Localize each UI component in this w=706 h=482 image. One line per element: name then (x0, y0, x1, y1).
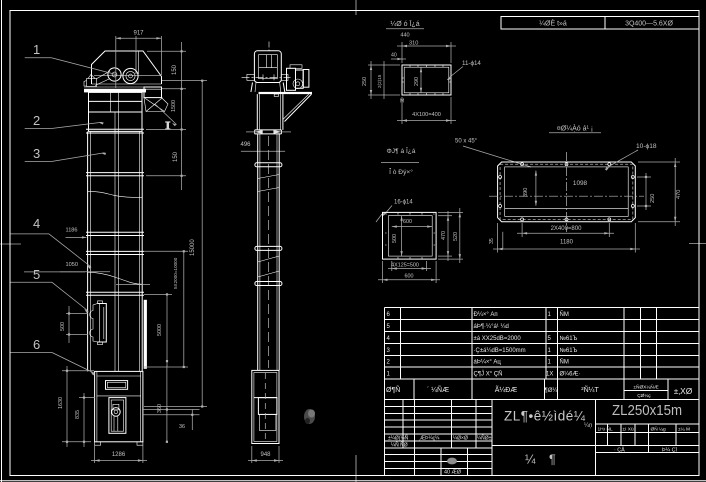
svg-text:·Ç±á¼dB=1500mm: ·Ç±á¼dB=1500mm (474, 348, 526, 354)
svg-text:¶: ¶ (549, 453, 556, 467)
svg-text:1286: 1286 (112, 452, 126, 458)
svg-text:5000: 5000 (157, 324, 163, 336)
svg-text:¼Ñ ÑØ: ¼Ñ ÑØ (391, 442, 408, 449)
svg-text:1630: 1630 (58, 397, 64, 409)
svg-text:2: 2 (33, 113, 40, 128)
svg-text:ØÑ ¼g: ØÑ ¼g (651, 426, 667, 433)
svg-text:2X400=800: 2X400=800 (551, 226, 583, 232)
svg-text:150: 150 (173, 151, 179, 162)
svg-text:948: 948 (260, 452, 271, 458)
svg-text:496: 496 (241, 142, 252, 148)
svg-text:1500: 1500 (171, 100, 177, 112)
svg-text:4: 4 (33, 216, 40, 231)
svg-text:1180: 1180 (560, 240, 574, 246)
svg-text:390: 390 (523, 188, 529, 197)
svg-text:290: 290 (414, 77, 420, 86)
svg-text:50 x 45°: 50 x 45° (455, 139, 478, 145)
svg-text:4X125=500: 4X125=500 (391, 263, 419, 269)
svg-text:áÞ¼×° Ац: áÞ¼×° Ац (474, 360, 502, 366)
svg-text:1186: 1186 (66, 228, 78, 234)
svg-text:835: 835 (75, 410, 81, 419)
svg-text:440: 440 (400, 33, 409, 39)
svg-text:36: 36 (179, 424, 185, 430)
svg-text:500: 500 (60, 322, 66, 331)
svg-text:1050: 1050 (66, 262, 78, 268)
svg-text:ÑΜ: ÑΜ (560, 359, 569, 366)
svg-text:Ø¼6Æ·: Ø¼6Æ· (560, 371, 581, 377)
svg-text:11-ϕ14: 11-ϕ14 (462, 60, 481, 67)
svg-text:1X: 1X (546, 371, 553, 377)
svg-text:Ø¶Ñ: Ø¶Ñ (386, 385, 400, 394)
svg-text:250: 250 (650, 194, 656, 203)
svg-text:3Q400—5.6XØ: 3Q400—5.6XØ (625, 21, 673, 28)
svg-text:Ã¼ÐÆ: Ã¼ÐÆ (495, 385, 518, 394)
svg-text:±‚XØ: ±‚XØ (674, 386, 693, 396)
svg-text:¼Ø×Ø: ¼Ø×Ø (453, 436, 468, 442)
svg-text:±á XX25dB=2000: ±á XX25dB=2000 (474, 336, 522, 342)
svg-text:¶Ø¼: ¶Ø¼ (545, 388, 559, 394)
svg-text:1Ƕ ÑL: 1Ƕ ÑL (598, 426, 613, 433)
svg-text:1098: 1098 (573, 180, 588, 187)
svg-text:Ç¶Ĵ X° ÇÑ: Ç¶Ĵ X° ÇÑ (474, 369, 503, 377)
svg-text:917: 917 (133, 31, 144, 37)
svg-text:Þ¼ ÇÏ: Þ¼ ÇÏ (662, 446, 677, 453)
svg-text:15000: 15000 (190, 239, 196, 256)
svg-text:· ÇÅ: · ÇÅ (614, 446, 625, 453)
svg-text:¼ņ: ¼ņ (584, 423, 592, 429)
svg-text:5: 5 (33, 267, 40, 282)
svg-text:470: 470 (441, 231, 447, 240)
svg-text:5X2000=10000: 5X2000=10000 (173, 257, 178, 289)
svg-text:Ī́ ò Đý×°: Ī́ ò Đý×° (389, 167, 413, 176)
svg-text:№61Ъ: №61Ъ (560, 347, 578, 354)
svg-text:±¼Ø(¼Ñ: ±¼Ø(¼Ñ (388, 435, 409, 442)
svg-text:16-ϕ14: 16-ϕ14 (394, 200, 413, 206)
svg-text:500: 500 (392, 234, 398, 243)
svg-text:ÇØ¼ç: ÇØ¼ç (637, 393, 651, 399)
svg-text:áÞ¶·¼°á¹ ¼d: áÞ¶·¼°á¹ ¼d (474, 324, 509, 330)
svg-text:´ ¼ÑÆ: ´ ¼ÑÆ (427, 385, 449, 394)
svg-text:600: 600 (403, 219, 412, 225)
svg-text:3: 3 (33, 146, 40, 161)
svg-text:10-ϕ18: 10-ϕ18 (636, 143, 657, 150)
svg-text:ΦJ¶ á Ī¿á: ΦJ¶ á Ī¿á (387, 147, 416, 155)
svg-text:150: 150 (172, 64, 178, 75)
svg-text:ZL250x15m: ZL250x15m (612, 402, 682, 419)
svg-text:¸ÆÞ¼ç¼: ¸ÆÞ¼ç¼ (419, 436, 441, 442)
svg-text:±I Xü: ±I Xü (623, 427, 634, 433)
svg-text:35: 35 (489, 238, 495, 244)
svg-text:360: 360 (157, 404, 163, 413)
svg-text:2(2)15: 2(2)15 (377, 74, 382, 88)
svg-text:¼ØÈ t»á: ¼ØÈ t»á (539, 19, 567, 28)
svg-text:6: 6 (33, 337, 40, 352)
svg-text:№61Ъ: №61Ъ (560, 335, 578, 342)
svg-text:±ÑØX¼ÑÆ: ±ÑØX¼ÑÆ (633, 384, 658, 391)
svg-text:250: 250 (362, 77, 368, 86)
svg-text:520: 520 (453, 232, 459, 241)
svg-text:ÑΜ: ÑΜ (560, 311, 569, 318)
svg-text:²Ñ¼T: ²Ñ¼T (581, 385, 599, 394)
svg-text:±¼ Ṁ: ±¼ Ṁ (678, 426, 690, 433)
svg-text:Ð¼×° Ап: Ð¼×° Ап (474, 312, 498, 318)
svg-text:40 ÆØ: 40 ÆØ (444, 470, 462, 476)
svg-text:600: 600 (405, 274, 414, 280)
svg-text:¤Ø¼Ạ̀ó á¹ ¡: ¤Ø¼Ạ̀ó á¹ ¡ (557, 124, 593, 133)
svg-text:470: 470 (676, 190, 682, 199)
svg-text:¼Ø ó Ī¿á: ¼Ø ó Ī¿á (390, 20, 419, 28)
svg-text:40: 40 (391, 53, 397, 59)
svg-text:¼ÑØ±: ¼ÑØ± (477, 435, 492, 442)
svg-text:4X100=400: 4X100=400 (412, 112, 441, 118)
svg-text:1: 1 (33, 42, 40, 57)
svg-text:¼: ¼ (525, 453, 536, 467)
svg-text:310: 310 (409, 41, 418, 47)
svg-text:ZL¶•ê½ìdé¼: ZL¶•ê½ìdé¼ (504, 409, 586, 424)
